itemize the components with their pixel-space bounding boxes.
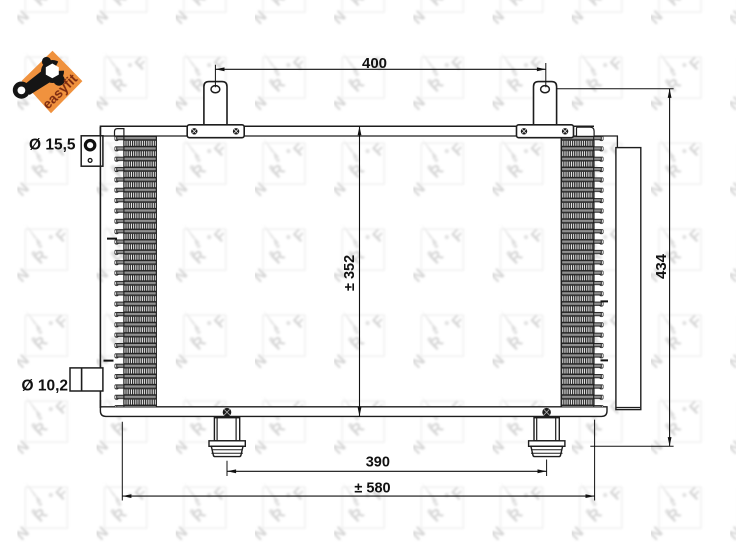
svg-text:390: 390 [366,455,390,471]
svg-text:± 352: ± 352 [342,255,358,291]
svg-text:Ø 15,5: Ø 15,5 [29,137,76,154]
svg-text:434: 434 [653,253,670,279]
svg-text:Ø 10,2: Ø 10,2 [22,378,69,395]
svg-text:400: 400 [362,55,387,72]
svg-text:± 580: ± 580 [354,481,390,497]
